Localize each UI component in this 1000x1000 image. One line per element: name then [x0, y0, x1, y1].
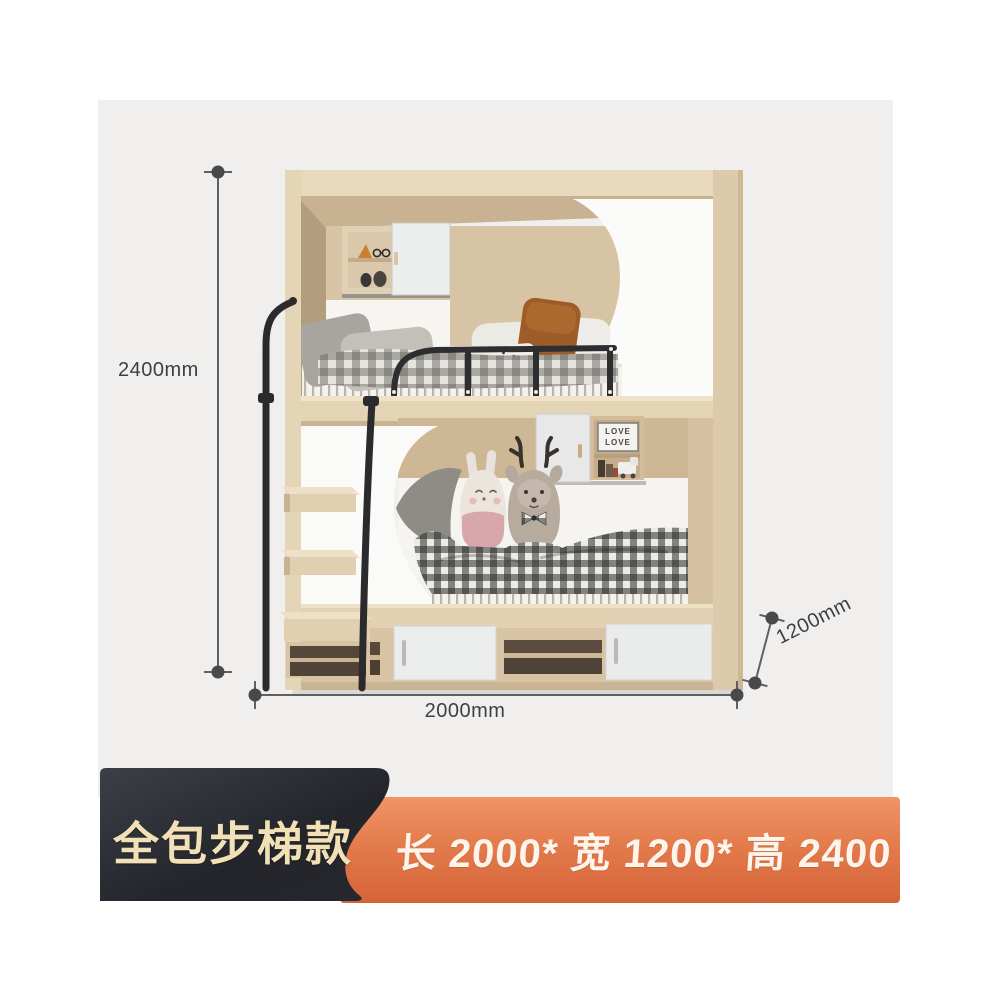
size-badge: 长 2000* 宽 1200* 高 2400 [340, 797, 900, 903]
base-cabinet-door [394, 626, 496, 680]
shelf-figurine [374, 271, 387, 287]
decor-frame-text: LOVE [605, 427, 631, 436]
ladder-step [280, 612, 372, 678]
ladder-step [282, 550, 360, 575]
height-dimension-label: 2400mm [118, 359, 208, 382]
length-dimension-label: 2000mm [405, 700, 525, 723]
size-badge-text: 长 2000* 宽 1200* 高 2400 [392, 797, 895, 903]
ladder-step [282, 487, 360, 512]
decor-frame-text: LOVE [605, 438, 631, 447]
shelf-figurine [361, 273, 372, 287]
upper-wall-shelf [342, 223, 450, 298]
base-cabinet-door [606, 624, 712, 680]
style-badge-text: 全包步梯款 [110, 808, 356, 874]
product-image: LOVE LOVE [0, 0, 1000, 1000]
